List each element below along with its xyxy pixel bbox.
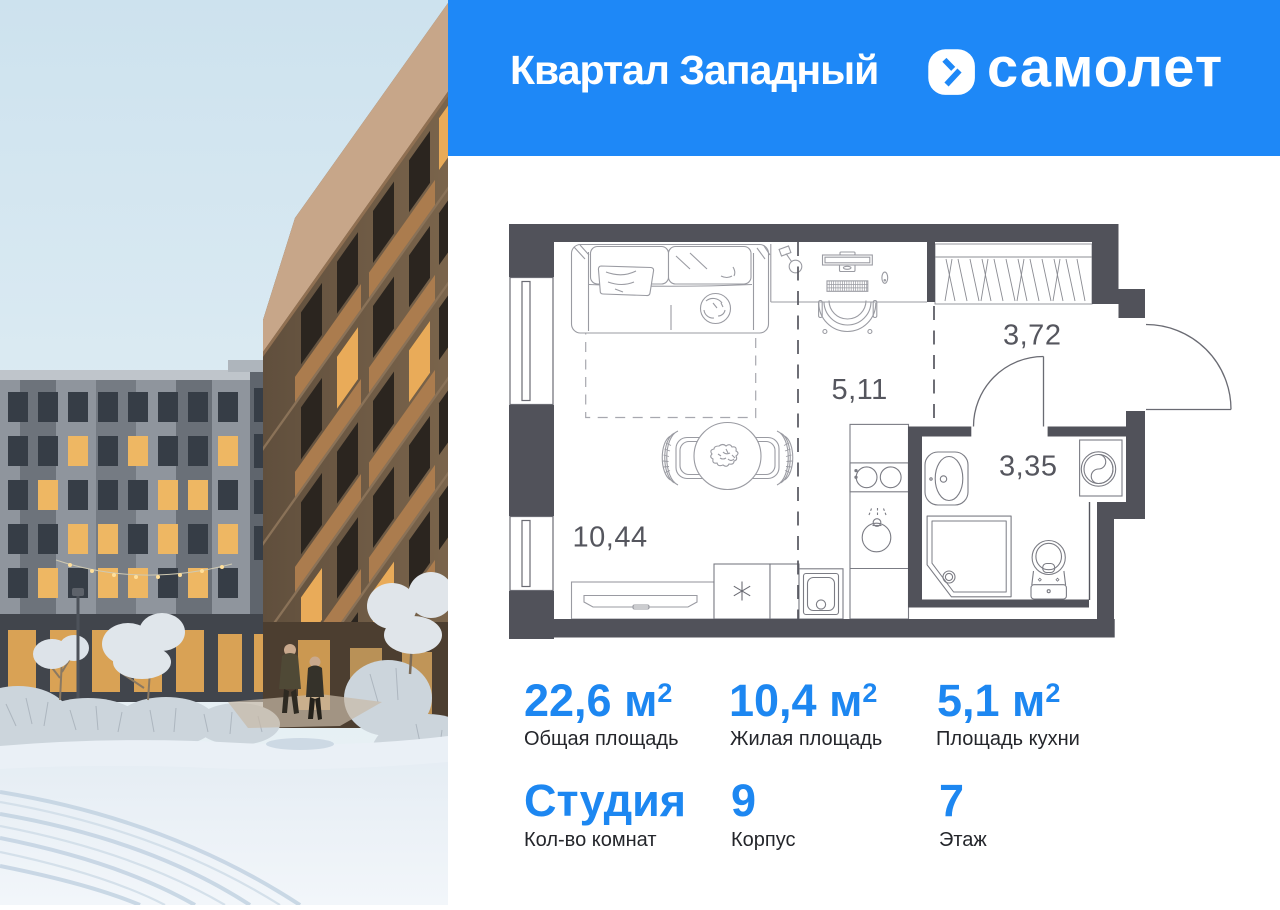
svg-text:самолет: самолет xyxy=(987,49,1223,99)
svg-text:3,72: 3,72 xyxy=(1003,319,1061,351)
svg-text:5,11: 5,11 xyxy=(832,374,888,406)
svg-text:3,35: 3,35 xyxy=(999,451,1057,483)
svg-text:10,44: 10,44 xyxy=(573,522,648,554)
